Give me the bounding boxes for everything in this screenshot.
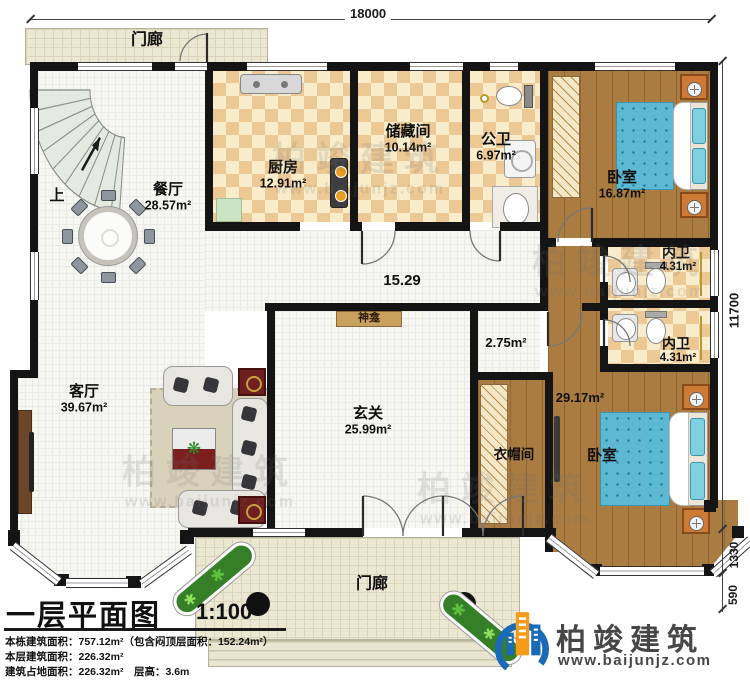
stat-total-area: 本栋建筑面积：757.12m²（包含闷顶层面积：152.24m²） (5, 634, 273, 649)
plan-scale: 1:100 (196, 599, 252, 625)
label-storage-name: 储藏间 (385, 124, 430, 140)
dimension-right-bay: 1330 (727, 535, 741, 575)
title-underline (4, 628, 286, 631)
label-ensuite1-name: 内卫 (662, 246, 690, 261)
label-corridor-area: 2.75m² (485, 336, 526, 350)
label-porch-top: 门廊 (131, 33, 163, 50)
label-living-area: 39.67m² (61, 401, 108, 414)
label-shrine: 神龛 (358, 313, 380, 325)
label-kitchen-name: 厨房 (268, 160, 298, 176)
dimension-top: 18000 (345, 6, 391, 21)
dimension-right-porch: 590 (726, 578, 740, 612)
label-foyer-name: 玄关 (353, 406, 383, 422)
label-kitchen-area: 12.91m² (260, 177, 307, 190)
label-porch-bottom: 门廊 (356, 577, 388, 594)
label-ensuite2-area: 4.31m² (660, 352, 696, 364)
label-dining-area: 28.57m² (145, 199, 192, 212)
label-bedroom-top-name: 卧室 (607, 170, 637, 186)
stat-footprint-area: 建筑占地面积：226.32m² 层高：3.6m (5, 664, 189, 679)
company-logo-icon (492, 606, 554, 680)
floor-plan: ❋ ✱ ✱ ✱ ✱ (0, 0, 750, 691)
label-stairs-up: 上 (49, 188, 64, 204)
label-bedroom-bottom-area: 29.17m² (556, 391, 604, 405)
label-hall-area: 15.29 (383, 273, 421, 289)
company-logo-url: www.baijunjz.com (558, 652, 711, 669)
label-public-bath-area: 6.97m² (476, 149, 516, 162)
dimension-right-main: 11700 (727, 289, 742, 333)
label-ensuite2-name: 内卫 (662, 337, 690, 352)
label-ensuite1-area: 4.31m² (660, 261, 696, 273)
label-bedroom-bottom-name: 卧室 (587, 448, 617, 464)
label-bedroom-top-area: 16.87m² (599, 187, 646, 200)
label-dining-name: 餐厅 (153, 182, 183, 198)
stat-floor-area: 本层建筑面积：226.32m² (5, 649, 123, 664)
label-cloakroom: 衣帽间 (494, 448, 535, 462)
label-storage-area: 10.14m² (385, 141, 432, 154)
label-public-bath-name: 公卫 (481, 132, 511, 148)
label-living-name: 客厅 (69, 384, 99, 400)
label-foyer-area: 25.99m² (345, 423, 392, 436)
